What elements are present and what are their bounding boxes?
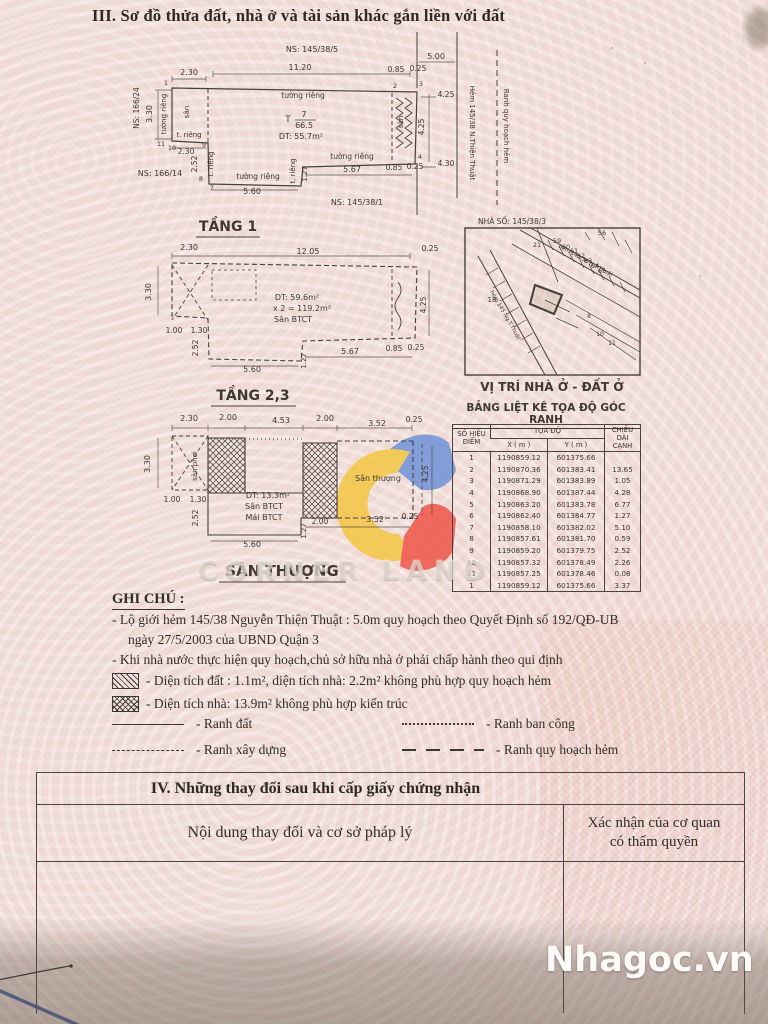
coord-cell: 1190863.20 (491, 498, 548, 510)
col-right-line1: Xác nhận của cơ quan (588, 814, 721, 833)
drawing-label: 4.30 (438, 159, 455, 168)
drawing-label: Sân thượng (355, 474, 401, 483)
coord-cell: 1190871.29 (491, 475, 548, 487)
note-line: - Diện tích nhà: 13.9m² không phù hợp ki… (112, 696, 408, 712)
note-line: - Diện tích đất : 1.1m², diện tích nhà: … (112, 673, 551, 689)
coord-cell: 7 (453, 522, 491, 534)
coord-row: 51190863.20601383.786.77 (453, 498, 641, 510)
drawing-label: 2.30 (180, 243, 198, 252)
drawing-label: 0.25 (402, 512, 419, 521)
legend-label: - Ranh ban công (486, 716, 575, 732)
corner-land-logo (336, 434, 456, 570)
drawing-label: Sân BTCT (274, 315, 312, 324)
note-line: - Khi nhà nước thực hiện quy hoạch,chủ s… (112, 652, 563, 668)
drawing-label: 21 (533, 241, 541, 249)
coord-header-length: CHIỀU DÀICẠNH (605, 425, 641, 452)
note-line: ngày 27/5/2003 của UBND Quận 3 (128, 632, 319, 648)
drawing-label: NS: 166/24 (132, 87, 141, 129)
legend-line-dotted (402, 723, 474, 725)
drawing-label: sân (183, 106, 191, 118)
drawing-label: Mái BTCT (246, 513, 283, 522)
section4-body-left (37, 862, 564, 1013)
drawing-label: 0.25 (410, 64, 427, 73)
note-text: - Diện tích nhà: 13.9m² không phù hợp ki… (146, 696, 408, 712)
drawing-label: 1.30 (191, 326, 208, 335)
coord-cell: 1190858.10 (491, 522, 548, 534)
coord-cell: 1190859.12 (491, 452, 548, 464)
drawing-label: 2.00 (312, 517, 329, 526)
drawing-label: 4.25 (417, 118, 426, 135)
coord-cell: 0.08 (605, 568, 641, 580)
section4-col-left: Nội dung thay đổi và cơ sở pháp lý (37, 805, 564, 861)
coord-cell: 601375.66 (548, 452, 605, 464)
drawing-label: 5.00 (427, 52, 445, 61)
coord-cell: 1 (453, 452, 491, 464)
legend-label: - Ranh đất (196, 716, 252, 732)
coord-cell: 1.05 (605, 475, 641, 487)
drawing-label: sân (397, 116, 405, 128)
land-certificate-page: III. Sơ đồ thửa đất, nhà ở và tài sản kh… (0, 0, 768, 1024)
coord-cell: 601378.49 (548, 556, 605, 568)
legend-label: - Ranh quy hoạch hẻm (496, 742, 618, 758)
legend: - Ranh đất- Ranh ban công- Ranh xây dựng… (112, 716, 672, 758)
drawing-label: 5.67 (341, 347, 359, 356)
drawing-label: Hẻm 145/38 N.Thiện Thuật (468, 86, 476, 181)
legend-line-longdash (402, 749, 484, 751)
drawing-label: 4.25 (438, 90, 455, 99)
drawing-label: NS: 145/38/1 (331, 198, 383, 207)
drawing-label: DT: 55.7m² (279, 132, 323, 141)
coord-row: 91190859.20601379.752.52 (453, 545, 641, 557)
drawing-label: tường riêng (160, 94, 168, 135)
coord-cell: 4 (453, 487, 491, 499)
coord-cell: 601387.44 (548, 487, 605, 499)
drawing-label: 10 (596, 331, 604, 338)
coord-cell: 601378.46 (548, 568, 605, 580)
drawing-label: VỊ TRÍ NHÀ Ở - ĐẤT Ở (480, 377, 624, 394)
coord-header-x: X ( m ) (491, 438, 548, 452)
coord-cell: 8 (453, 533, 491, 545)
coord-cell: 601384.77 (548, 510, 605, 522)
coord-cell: 9 (453, 545, 491, 557)
note-text: - Diện tích đất : 1.1m², diện tích nhà: … (146, 673, 551, 689)
coord-row: 21190870.36601383.4113.65 (453, 464, 641, 476)
drawing-label: 2.00 (219, 413, 237, 422)
drawing-label: 7 (210, 184, 214, 192)
hatch-swatch (112, 673, 139, 689)
section3-title: III. Sơ đồ thửa đất, nhà ở và tài sản kh… (92, 6, 712, 26)
drawing-label: 2.52 (191, 509, 200, 526)
drawing-label: 3.52 (366, 515, 384, 524)
legend-item: - Ranh quy hoạch hẻm (402, 742, 672, 758)
coord-row: 31190871.29601383.891.05 (453, 475, 641, 487)
drawing-label: 3.30 (145, 105, 154, 123)
drawing-label: 1.27 (301, 166, 309, 182)
crosshatch-swatch (112, 696, 139, 712)
drawing-label: 56 (598, 229, 606, 237)
plan-tang1 (155, 32, 497, 237)
drawing-label: DT: 13.3m² (246, 491, 290, 500)
drawing-label: 12.05 (297, 247, 320, 256)
coord-cell: 601383.41 (548, 464, 605, 476)
coord-cell: 1190859.20 (491, 545, 548, 557)
drawing-label: 8 (587, 313, 591, 320)
drawing-label: Sân BTCT (245, 502, 283, 511)
coord-row: 61190862.40601384.771.27 (453, 510, 641, 522)
drawing-label: 7 (301, 110, 306, 119)
coord-cell: 0.59 (605, 533, 641, 545)
drawing-label: 9 (202, 141, 206, 149)
drawing-label: 11 (157, 140, 165, 148)
drawing-label: 66.5 (295, 121, 313, 130)
drawing-label: TẦNG 2,3 (216, 385, 289, 404)
drawing-label: 4.25 (421, 465, 430, 482)
coord-cell: 1190857.61 (491, 533, 548, 545)
col-right-line2: có thẩm quyền (610, 833, 698, 852)
drawing-label: 1.30 (190, 495, 207, 504)
drawing-label: 1.00 (166, 326, 183, 335)
legend-item: - Ranh đất (112, 716, 402, 732)
drawing-label: 2.30 (178, 147, 195, 156)
coord-header-coord: TỌA ĐỘ (491, 425, 605, 439)
drawing-label: hẻm 145 Ng.T.Thuật (488, 289, 522, 342)
drawing-label: 0.85 (386, 344, 403, 353)
coord-cell: 1190868.90 (491, 487, 548, 499)
coord-header-y: Y ( m ) (548, 438, 605, 452)
drawing-label: 0.25 (407, 162, 424, 171)
coord-cell: 601379.75 (548, 545, 605, 557)
drawing-label: sân phơi (191, 451, 199, 481)
drawing-label: DT: 59.6m² (275, 293, 319, 302)
drawing-label: 5.67 (343, 165, 361, 174)
drawing-label: 0.85 (386, 163, 403, 172)
drawing-label: 1 (164, 79, 168, 87)
drawing-label: 2.30 (180, 414, 198, 423)
drawing-label: tường riêng (281, 91, 325, 100)
drawing-label: 0.85 (388, 65, 405, 74)
coord-row: 81190857.61601381.700.59 (453, 533, 641, 545)
coord-cell: 3.37 (605, 580, 641, 592)
legend-item: - Ranh ban công (402, 716, 672, 732)
section4-col-right: Xác nhận của cơ quan có thẩm quyền (564, 805, 744, 861)
coord-cell: 601383.89 (548, 475, 605, 487)
coord-cell: 2.26 (605, 556, 641, 568)
drawing-label: x 2 = 119.2m² (273, 304, 331, 313)
drawing-label: 0.25 (408, 343, 425, 352)
drawing-label: 0.25 (406, 415, 423, 424)
coord-header-point: SỐ HIỆUĐIỂM (453, 425, 491, 452)
photo-smudges (611, 8, 768, 277)
drawing-label: 2.52 (191, 339, 200, 356)
drawing-label: 2 (393, 82, 397, 90)
coord-cell: 601381.70 (548, 533, 605, 545)
drawing-label: 1.00 (164, 495, 181, 504)
coord-cell: 2 (453, 464, 491, 476)
legend-label: - Ranh xây dựng (196, 742, 286, 758)
drawing-label: NHÀ SỐ: 145/38/3 (478, 216, 546, 226)
coord-cell: 2.52 (605, 545, 641, 557)
coord-row: 71190858.10601382.025.10 (453, 522, 641, 534)
drawing-label: 2.30 (180, 68, 198, 77)
drawing-label: NS: 145/38/5 (286, 45, 338, 54)
drawing-label: 5.60 (243, 540, 261, 549)
coord-cell: 4.28 (605, 487, 641, 499)
drawing-label: tường riêng (236, 172, 280, 181)
coord-cell: 601375.66 (548, 580, 605, 592)
site-watermark: Nhagoc.vn (545, 940, 760, 980)
drawing-label: 3.30 (143, 455, 152, 473)
drawing-label: T (284, 115, 291, 125)
drawing-label: tường riêng (330, 152, 374, 161)
drawing-label: 1.27 (300, 353, 308, 369)
drawing-label: 5.60 (243, 187, 261, 196)
drawing-label: hẻm 145/38 N.T.Thuật (557, 243, 615, 279)
coord-cell (605, 452, 641, 464)
drawing-label: 10 (168, 144, 176, 152)
drawing-label: TẦNG 1 (199, 216, 257, 235)
coord-row: 41190868.90601387.444.28 (453, 487, 641, 499)
drawing-label: 8 (199, 175, 203, 183)
drawing-label: 2.52 (190, 155, 199, 172)
drawing-label: 3.30 (144, 283, 153, 301)
coord-cell: 5 (453, 498, 491, 510)
coord-cell: 6 (453, 510, 491, 522)
drawing-label: 11 (608, 340, 616, 347)
drawing-label: 3.52 (368, 419, 386, 428)
drawing-label: 5.60 (243, 365, 261, 374)
drawing-label: 4.25 (419, 296, 428, 313)
drawing-label: 3 (419, 80, 423, 88)
notes-heading: GHI CHÚ : (112, 591, 185, 610)
drawing-label: 0.25 (422, 244, 439, 253)
drawing-label: t. riêng (176, 131, 201, 139)
drawing-label: NS: 166/14 (138, 169, 182, 178)
coord-cell: 6.77 (605, 498, 641, 510)
section4-title: IV. Những thay đổi sau khi cấp giấy chứn… (37, 773, 744, 805)
coord-cell: 5.10 (605, 522, 641, 534)
coord-cell: 1190870.36 (491, 464, 548, 476)
drawing-label: 4.53 (272, 416, 290, 425)
drawing-label: 2.00 (316, 414, 334, 423)
coord-row: 11190859.12601375.66 (453, 452, 641, 464)
coord-cell: 3 (453, 475, 491, 487)
drawing-label: 11.20 (289, 63, 312, 72)
legend-line-solid (112, 724, 184, 725)
drawing-label: t. riêng (207, 151, 215, 176)
coord-cell: 13.65 (605, 464, 641, 476)
note-line: - Lộ giới hẻm 145/38 Nguyễn Thiện Thuật … (112, 612, 618, 628)
legend-line-dashed (112, 750, 184, 751)
legend-item: - Ranh xây dựng (112, 742, 402, 758)
drawing-label: 4 (418, 153, 422, 161)
coord-cell: 1190862.40 (491, 510, 548, 522)
drawing-label: t. riêng (289, 158, 297, 183)
brand-watermark: CORNER LAND (198, 556, 518, 587)
coord-cell: 1.27 (605, 510, 641, 522)
drawing-label: 1.27 (300, 523, 308, 539)
drawing-label: Ranh quy hoạch hẻm (502, 89, 510, 164)
coord-cell: 601382.02 (548, 522, 605, 534)
coord-cell: 601383.78 (548, 498, 605, 510)
